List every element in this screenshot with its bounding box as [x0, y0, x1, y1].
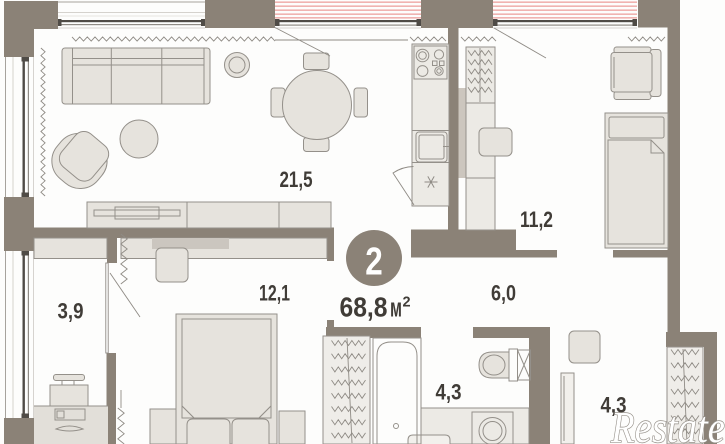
- svg-text:м: м: [390, 293, 402, 323]
- svg-text:Restate: Restate: [610, 403, 725, 444]
- svg-text:11,2: 11,2: [520, 207, 553, 232]
- svg-text:6,0: 6,0: [491, 281, 516, 306]
- svg-text:12,1: 12,1: [259, 281, 290, 306]
- svg-text:21,5: 21,5: [280, 167, 313, 192]
- svg-text:4,3: 4,3: [436, 380, 462, 405]
- svg-text:68,8: 68,8: [340, 292, 388, 323]
- svg-text:3,9: 3,9: [58, 299, 84, 324]
- svg-text:2: 2: [365, 241, 383, 284]
- svg-text:2: 2: [403, 295, 411, 311]
